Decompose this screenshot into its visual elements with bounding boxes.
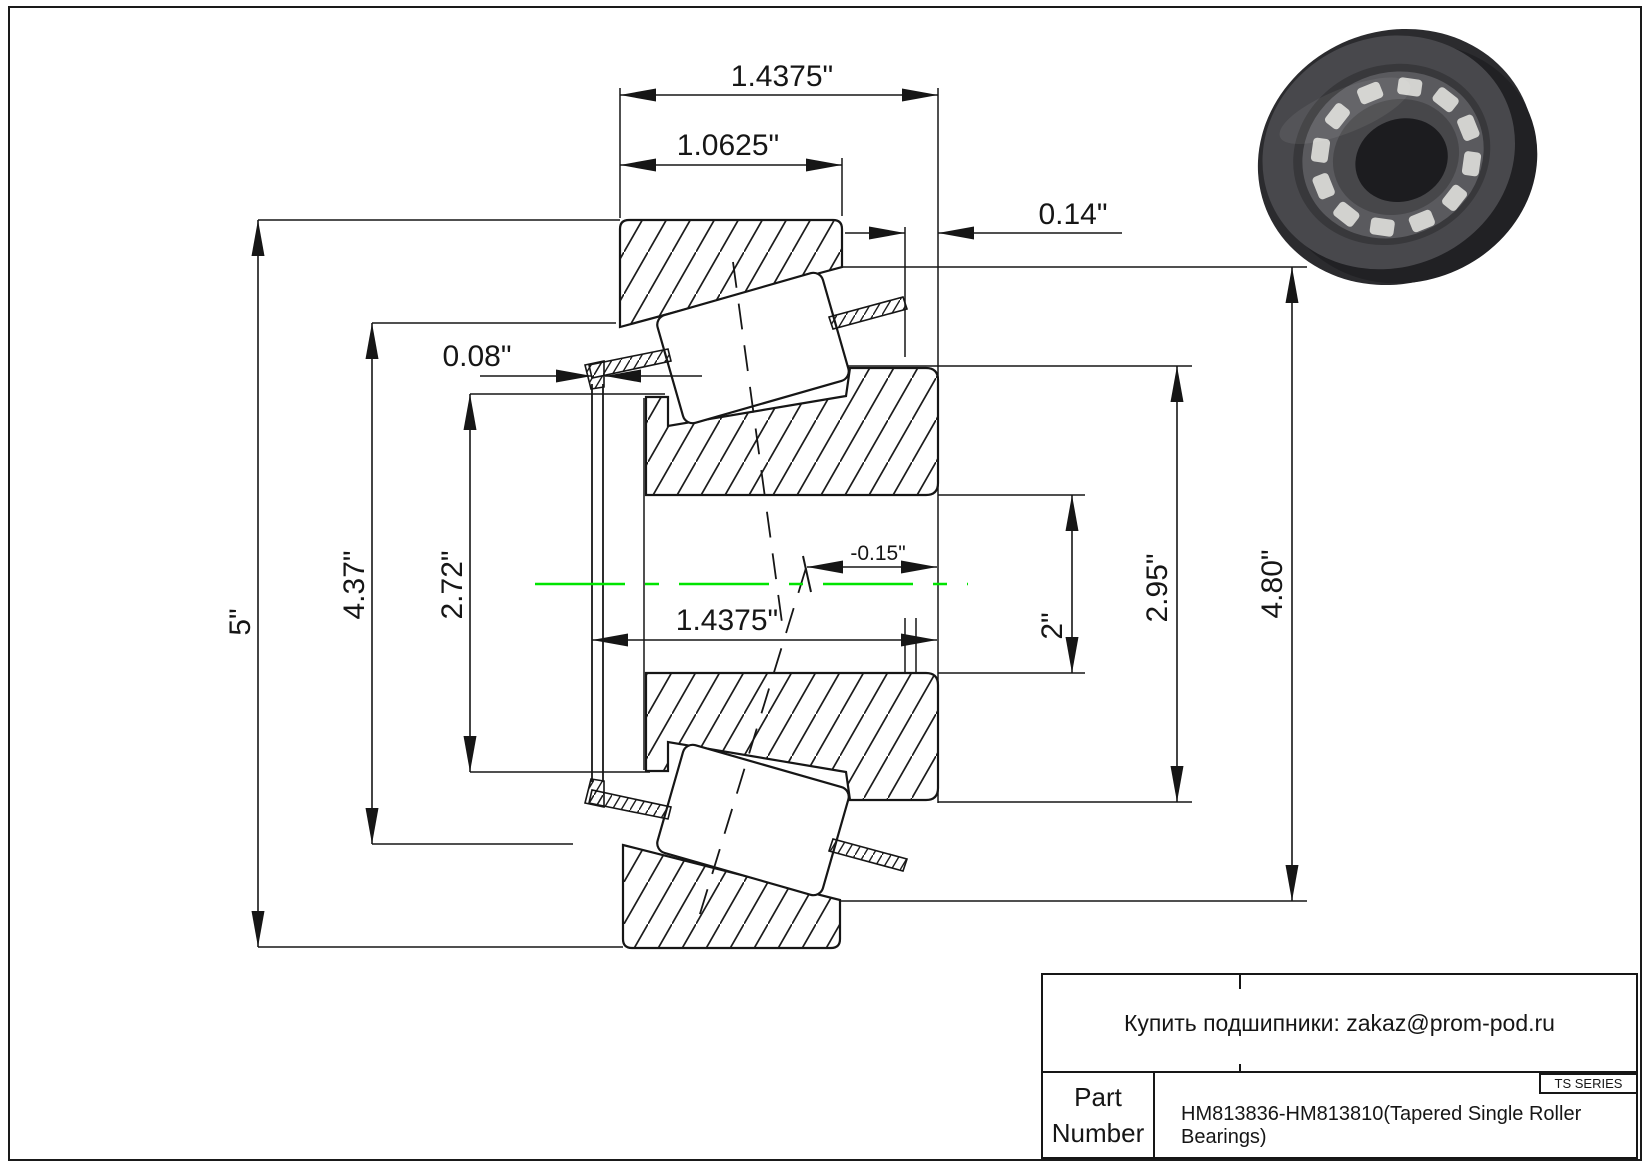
dim-label-rib-diameter: 2.72": [436, 550, 469, 619]
dim-label-outer-diameter: 5": [224, 608, 257, 635]
dim-label-cage-front-gap: 0.08": [442, 340, 511, 373]
cage-strip-bottom-left: [589, 790, 671, 819]
dim-label-effective-center-offset: -0.15": [850, 542, 905, 565]
cage-strip-top-right: [829, 297, 907, 329]
dim-label-cage-protrusion: 0.14": [1038, 198, 1107, 231]
column-tick-bottom: [1239, 1064, 1241, 1071]
dim-label-bore-diameter: 2": [1036, 612, 1069, 639]
ts-series-badge: TS SERIES: [1539, 1073, 1638, 1094]
title-block: Купить подшипники: zakaz@prom-pod.ru Par…: [1041, 973, 1638, 1159]
dim-label-total-width-top: 1.4375": [731, 60, 833, 93]
column-tick-top: [1239, 975, 1241, 989]
bearing-3d-render: [1219, 0, 1574, 328]
part-label-line2: Number: [1052, 1115, 1144, 1151]
cage-strip-bottom-right: [829, 839, 907, 871]
title-block-part-row: Part Number TS SERIES HM813836-HM813810(…: [1043, 1073, 1636, 1157]
dim-label-total-width-bottom: 1.4375": [676, 604, 778, 637]
dim-label-housing-diameter: 4.80": [1256, 549, 1289, 618]
part-label-line1: Part: [1074, 1079, 1122, 1115]
dim-label-cone-backface-diameter: 2.95": [1141, 553, 1174, 622]
part-number-value: HM813836-HM813810(Tapered Single Roller …: [1181, 1103, 1630, 1149]
contact-text: Купить подшипники: zakaz@prom-pod.ru: [1124, 1010, 1555, 1037]
dim-label-cup-width: 1.0625": [677, 129, 779, 162]
title-block-contact-row: Купить подшипники: zakaz@prom-pod.ru: [1043, 975, 1636, 1073]
ts-series-text: TS SERIES: [1555, 1076, 1623, 1091]
part-number-label-cell: Part Number: [1043, 1073, 1155, 1157]
part-number-value-cell: TS SERIES HM813836-HM813810(Tapered Sing…: [1155, 1073, 1636, 1157]
dim-label-shoulder-diameter: 4.37": [338, 550, 371, 619]
technical-drawing-page: 1.4375" 1.0625" 0.14" 0.08" -0.15" 1.437…: [0, 0, 1649, 1167]
